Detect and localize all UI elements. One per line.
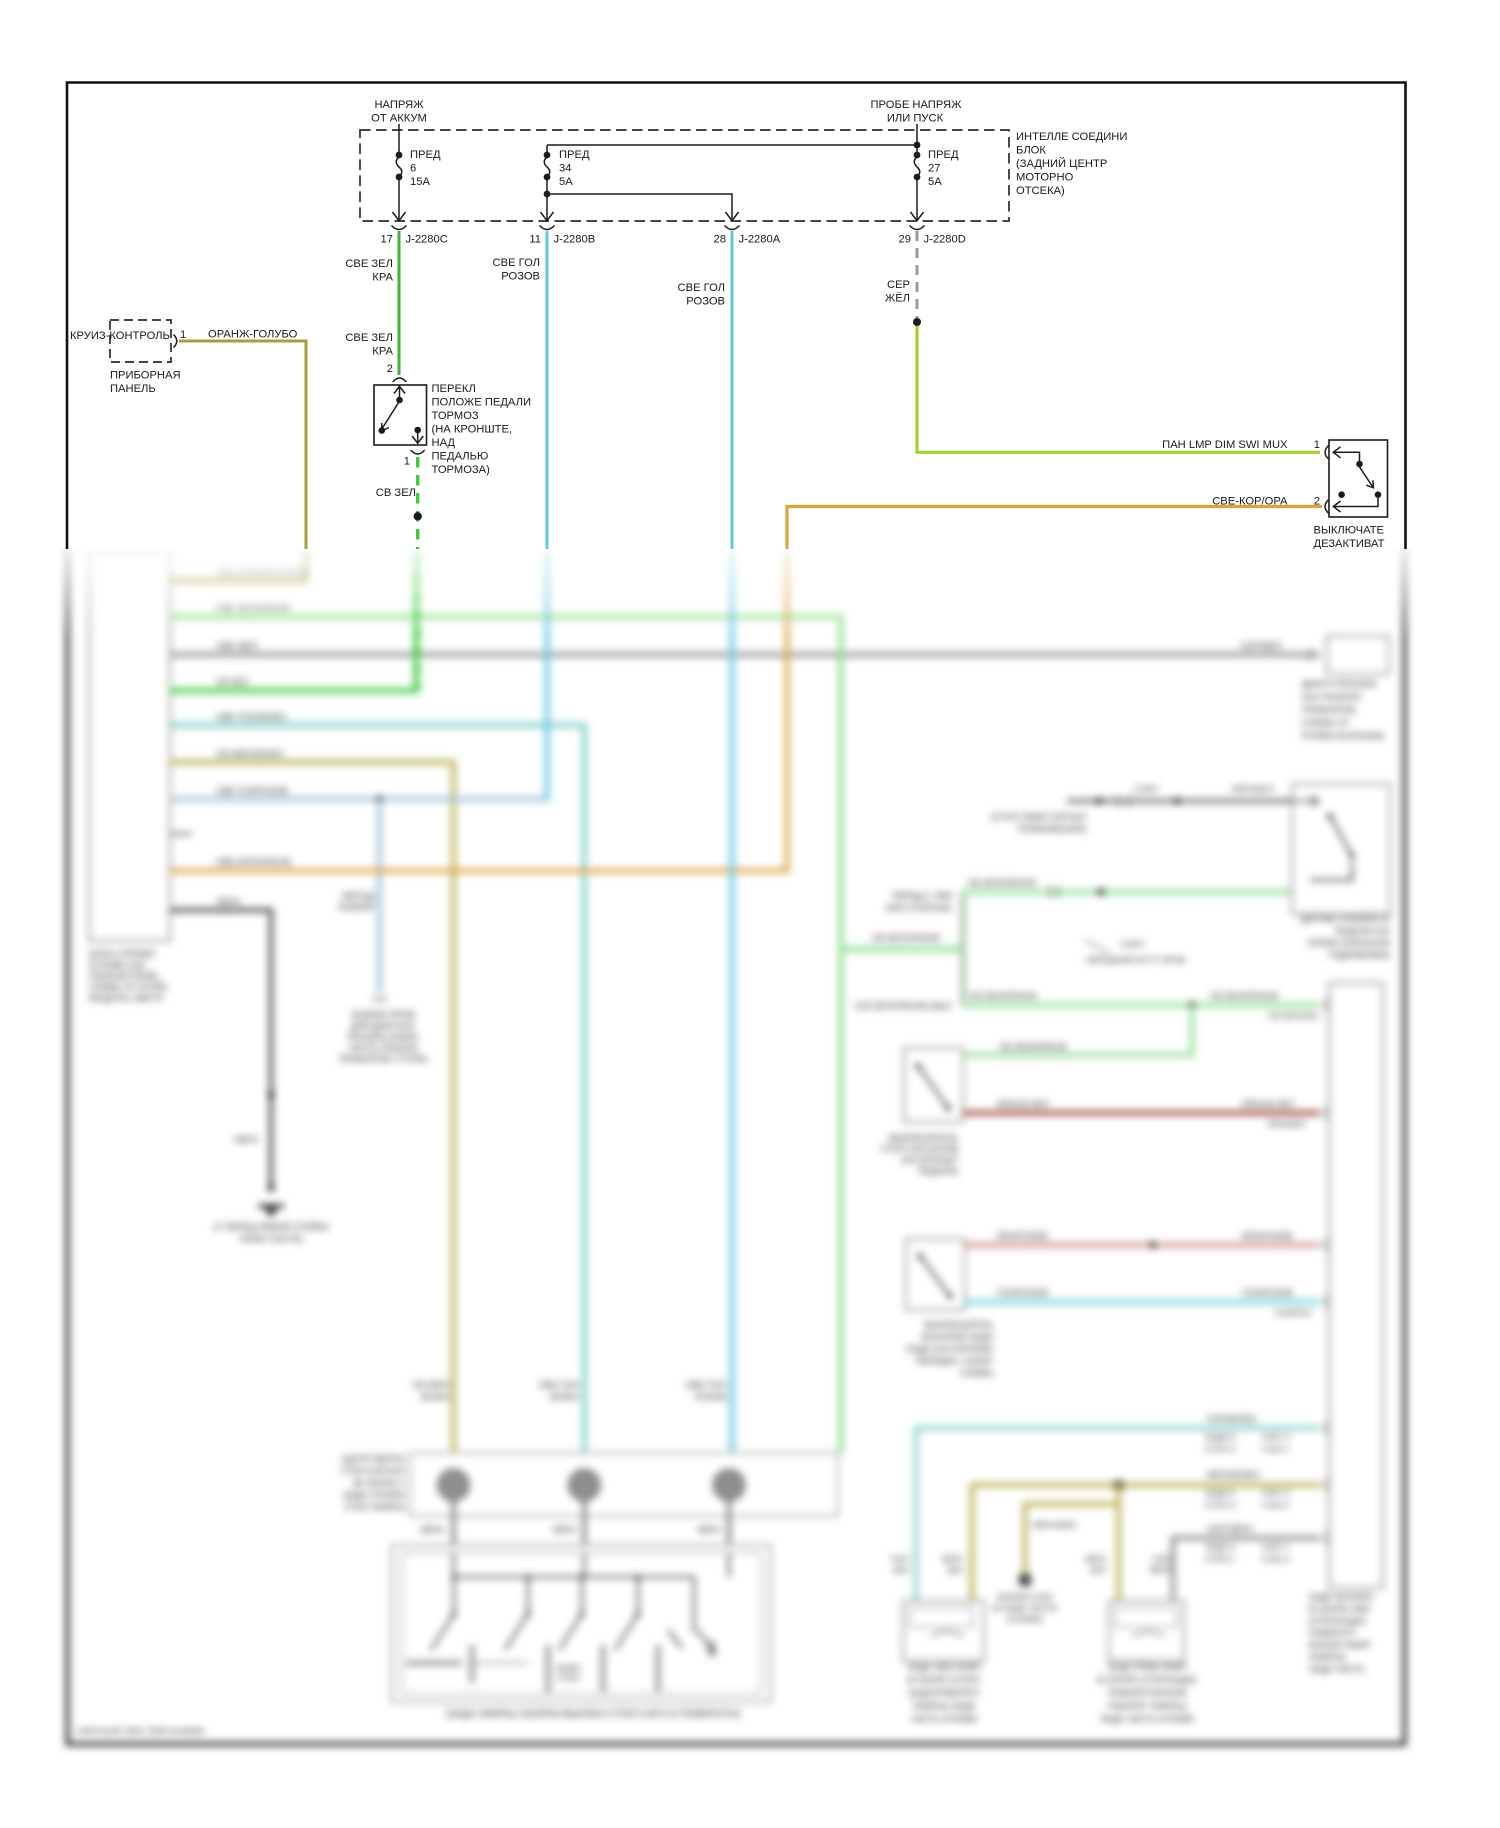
svg-text:ЛАМПЫ) ЗАДН: ЛАМПЫ) ЗАДН <box>912 1701 976 1711</box>
svg-text:С407 1: С407 1 <box>1262 1542 1290 1552</box>
svg-text:СТОП 2: СТОП 2 <box>1205 1444 1236 1454</box>
svg-text:ЗЕЛ: ЗЕЛ <box>1090 1565 1106 1575</box>
svg-text:СВ ЗЕЛ: СВ ЗЕЛ <box>216 677 248 687</box>
svg-text:РАЗЪЕМ (НИЖН: РАЗЪЕМ (НИЖН <box>348 1032 419 1042</box>
svg-text:J-2280B: J-2280B <box>554 234 596 246</box>
svg-text:6: 6 <box>410 163 416 175</box>
svg-text:ЗАЗЕМЛ: ЗАЗЕМЛ <box>338 902 374 912</box>
svg-text:РУЛЕВ КОЛОНКИ): РУЛЕВ КОЛОНКИ) <box>1302 731 1384 742</box>
svg-text:ПЕДАЛИ (НА: ПЕДАЛИ (НА <box>1335 926 1390 936</box>
svg-text:В СБОРЕ ЛЕВ: В СБОРЕ ЛЕВ <box>1309 1604 1369 1614</box>
svg-text:ТОРМОЗА): ТОРМОЗА) <box>432 464 491 476</box>
svg-text:СВЕ ГОЛ: СВЕ ГОЛ <box>678 282 725 294</box>
svg-text:15A: 15A <box>410 176 430 188</box>
svg-text:(В ЗАДН ЧАСТИ: (В ЗАДН ЧАСТИ <box>993 1603 1058 1613</box>
svg-text:2: 2 <box>387 363 393 375</box>
svg-text:МОДУЛЬ СВЕТА: МОДУЛЬ СВЕТА <box>89 993 163 1004</box>
svg-text:ЖЁЛ/: ЖЁЛ/ <box>1085 1554 1107 1564</box>
svg-text:ПЕРЕДНИЙ ЖГУТ ПРОВ: ПЕРЕДНИЙ ЖГУТ ПРОВ <box>1086 954 1185 965</box>
svg-text:(В СБОРЕ С: (В СБОРЕ С <box>353 1478 405 1488</box>
svg-text:ДЛЯ ДИАГНОС: ДЛЯ ДИАГНОС <box>351 1021 416 1031</box>
svg-text:J-2280A: J-2280A <box>739 234 781 246</box>
svg-text:J-2280C: J-2280C <box>406 234 448 246</box>
svg-text:СВЕ-ОРАНЖ/ГОЛУБО: СВЕ-ОРАНЖ/ГОЛУБО <box>216 567 309 577</box>
svg-text:КРА/ЖЁЛ: КРА/ЖЁЛ <box>1268 1119 1305 1129</box>
svg-text:ЗЕЛ: ЗЕЛ <box>947 1565 963 1575</box>
svg-text:ЗАДН СПОЙЛ): ЗАДН СПОЙЛ) <box>343 1489 405 1500</box>
svg-text:С407 2: С407 2 <box>1262 1488 1290 1498</box>
svg-text:СВЕ ЖЁЛ: СВЕ ЖЁЛ <box>216 641 257 651</box>
svg-text:ГИДРАВЛИКИ): ГИДРАВЛИКИ) <box>1328 950 1390 960</box>
svg-text:ЖЁЛ/ЗЕЛЕН: ЖЁЛ/ЗЕЛЕН <box>1207 1470 1260 1480</box>
svg-text:РОЗОВ: РОЗОВ <box>686 296 725 308</box>
svg-text:5A: 5A <box>928 176 942 188</box>
svg-text:С2057: С2057 <box>1134 784 1159 794</box>
svg-text:СВЕ ЗЕЛ: СВЕ ЗЕЛ <box>345 258 393 270</box>
svg-text:ЛАМПЫ): ЛАМПЫ) <box>1309 1652 1346 1662</box>
svg-text:ПЕДАЛИ): ПЕДАЛИ) <box>918 1166 958 1176</box>
svg-text:БЛОК: БЛОК <box>1016 145 1046 157</box>
svg-text:ЗАДН 6: ЗАДН 6 <box>1205 1432 1235 1442</box>
svg-text:БЛОКЕ КЛАПАНОВ: БЛОКЕ КЛАПАНОВ <box>1308 938 1390 948</box>
svg-text:КУЗОВА (НА: КУЗОВА (НА <box>89 960 146 971</box>
svg-text:1: 1 <box>180 329 186 341</box>
svg-text:(ЗАДН ЛАМПЫ СБОРКА ВЫКЛЮЧ СТОП: (ЗАДН ЛАМПЫ СБОРКА ВЫКЛЮЧ СТОП-СИГН И ПО… <box>446 1709 741 1720</box>
svg-text:ЗЕЛЕН: ЗЕЛЕН <box>549 1392 579 1402</box>
svg-text:СВ ЗЕЛ/ОРАНЖ: СВ ЗЕЛ/ОРАНЖ <box>999 1042 1068 1052</box>
svg-text:СЛЕВА): СЛЕВА) <box>960 1368 993 1378</box>
svg-text:СВ ЗЕЛ/ОРАНЖ: СВ ЗЕЛ/ОРАНЖ <box>969 991 1038 1001</box>
svg-text:27: 27 <box>928 163 940 175</box>
svg-text:ПРОБЕ НАПРЯЖ: ПРОБЕ НАПРЯЖ <box>871 99 963 111</box>
svg-text:2: 2 <box>1314 496 1320 508</box>
svg-text:ВЫКЛЮЧАТЕЛЬ: ВЫКЛЮЧАТЕЛЬ <box>889 1133 958 1143</box>
svg-text:ЗЕЛ: ЗЕЛ <box>893 1565 909 1575</box>
svg-text:ГОЛ/ЗЕЛЕН: ГОЛ/ЗЕЛЕН <box>1207 1414 1257 1424</box>
svg-text:КРА/РОЗОВ: КРА/РОЗОВ <box>1242 1231 1292 1241</box>
svg-text:КРА/СВ ЗЕЛ: КРА/СВ ЗЕЛ <box>997 1099 1049 1109</box>
svg-text:ЗАДН ПРАВ ЛАМП: ЗАДН ПРАВ ЛАМП <box>1107 1662 1186 1672</box>
svg-text:ЧАСТЬ ПАНЕЛИ: ЧАСТЬ ПАНЕЛИ <box>348 1043 417 1053</box>
svg-text:СЕР/ЖЁЛ: СЕР/ЖЁЛ <box>1240 641 1281 651</box>
svg-text:С410 1: С410 1 <box>1262 1444 1290 1454</box>
svg-text:ЗАДН/ПОВОРОТ: ЗАДН/ПОВОРОТ <box>908 1688 980 1698</box>
svg-text:КРУИЗ-КОНТРОЛЬ: КРУИЗ-КОНТРОЛЬ <box>70 330 170 342</box>
svg-text:СВЕ ГОЛ: СВЕ ГОЛ <box>493 257 540 269</box>
svg-text:СЛЕВА ОТ РУЛЯ): СЛЕВА ОТ РУЛЯ) <box>89 982 167 993</box>
svg-text:ДАТЧИК УСКОРЕН И: ДАТЧИК УСКОРЕН И <box>1301 914 1390 924</box>
svg-text:(ЗАДНИЙ ЦЕНТР: (ЗАДНИЙ ЦЕНТР <box>1016 157 1107 170</box>
svg-text:(СТОП/ЗАДН/: (СТОП/ЗАДН/ <box>1309 1616 1367 1626</box>
svg-text:ЗЕЛЕН: ЗЕЛЕН <box>420 1392 450 1402</box>
svg-text:28: 28 <box>714 234 726 246</box>
svg-text:КРА: КРА <box>372 272 393 284</box>
svg-text:СВ ЖЁЛ/: СВ ЖЁЛ/ <box>412 1380 450 1390</box>
svg-text:СТОП-СИГНАЛОВ: СТОП-СИГНАЛОВ <box>881 1144 958 1154</box>
svg-text:ЛАМП: ЛАМП <box>556 1663 580 1673</box>
svg-text:СЛЕВА ОТ: СЛЕВА ОТ <box>1302 718 1350 729</box>
svg-text:ЧАСТЬ КУЗОВА: ЧАСТЬ КУЗОВА <box>911 1714 978 1724</box>
svg-text:ЗАДН 4: ЗАДН 4 <box>1205 1542 1235 1552</box>
svg-text:СТОП: СТОП <box>556 1673 579 1683</box>
svg-text:ЗАДН ЛЕВ ЛАМП: ЗАДН ЛЕВ ЛАМП <box>907 1662 980 1672</box>
svg-text:ПАН LMP DIM SWI MUX: ПАН LMP DIM SWI MUX <box>1162 439 1288 451</box>
svg-text:СВЕ ЗЕЛ: СВЕ ЗЕЛ <box>345 332 393 344</box>
svg-text:ЧЁРН: ЧЁРН <box>216 897 241 907</box>
svg-text:С407 4: С407 4 <box>1262 1432 1290 1442</box>
svg-text:ПРИБОРОВ: ПРИБОРОВ <box>1302 705 1355 716</box>
svg-text:БЛОК УПРАВЛ: БЛОК УПРАВЛ <box>89 949 154 960</box>
svg-text:29: 29 <box>899 234 911 246</box>
svg-text:НИЖН ЧАСТИ): НИЖН ЧАСТИ) <box>239 1234 302 1244</box>
svg-text:(НА ПАНЕЛИ: (НА ПАНЕЛИ <box>1302 692 1361 703</box>
svg-text:ГОЛ/РОЗОВ: ГОЛ/РОЗОВ <box>1242 1288 1293 1298</box>
svg-text:ПЕРЕД С ЛЕВ: ПЕРЕД С ЛЕВ <box>892 891 952 901</box>
svg-text:НИЗ СТОРОНЫ: НИЗ СТОРОНЫ <box>886 903 953 913</box>
svg-text:МОТОРНО: МОТОРНО <box>1016 172 1074 184</box>
svg-text:ФОНАРЕЙ ЗАДН: ФОНАРЕЙ ЗАДН <box>921 1331 993 1342</box>
svg-text:С410 3: С410 3 <box>1262 1554 1290 1564</box>
svg-text:СТОП 1: СТОП 1 <box>1205 1554 1236 1564</box>
svg-text:ПАНЕЛЬ: ПАНЕЛЬ <box>110 383 156 395</box>
svg-text:CHRYSLER 300C 2008 SCHEMA: CHRYSLER 300C 2008 SCHEMA <box>76 1726 205 1736</box>
svg-text:КРА/СВ ЗЕЛ: КРА/СВ ЗЕЛ <box>1242 1099 1294 1109</box>
svg-text:ГОЛ/РОЗ: ГОЛ/РОЗ <box>1275 1308 1311 1318</box>
svg-text:ПОВОРОТ/БОКОВ: ПОВОРОТ/БОКОВ <box>1108 1688 1186 1698</box>
svg-text:ПЕРЕДАЧ, СНИЗУ: ПЕРЕДАЧ, СНИЗУ <box>916 1356 994 1366</box>
svg-text:ПАНЕЛИ ПРИБ,: ПАНЕЛИ ПРИБ, <box>89 971 160 982</box>
svg-text:В СБОРЕ (СТОП/ЗАДН/: В СБОРЕ (СТОП/ЗАДН/ <box>1097 1675 1197 1685</box>
svg-text:БОКОВ ГАБАР: БОКОВ ГАБАР <box>1309 1640 1370 1650</box>
svg-text:РОЗОВ: РОЗОВ <box>501 271 540 283</box>
svg-text:ДЕЗАКТИВАТ: ДЕЗАКТИВАТ <box>1314 538 1385 549</box>
svg-text:ПРЕД: ПРЕД <box>928 149 959 161</box>
svg-text:ВЫКЛЮЧАТЕ: ВЫКЛЮЧАТЕ <box>1314 525 1385 537</box>
svg-text:ПРИБОРОВ У РУЛЯ): ПРИБОРОВ У РУЛЯ) <box>339 1054 427 1064</box>
svg-text:ТОРМОЖЕНИЯ): ТОРМОЖЕНИЯ) <box>1017 824 1086 834</box>
svg-text:СЕР/: СЕР/ <box>1152 1554 1172 1564</box>
svg-text:ЖЁЛ: ЖЁЛ <box>885 293 910 305</box>
svg-text:СВ ЗЕЛ/ОРА: СВ ЗЕЛ/ОРА <box>1268 1011 1319 1021</box>
svg-text:ЗАДН ЧАСТЬ: ЗАДН ЧАСТЬ <box>1309 1664 1365 1674</box>
svg-text:ПЕРЕКЛ: ПЕРЕКЛ <box>432 383 476 395</box>
svg-text:СВЕ ГОЛ/: СВЕ ГОЛ/ <box>538 1380 579 1390</box>
svg-text:С410 2: С410 2 <box>1262 1500 1290 1510</box>
svg-text:ПОЛОЖЕ ПЕДАЛИ: ПОЛОЖЕ ПЕДАЛИ <box>432 397 532 409</box>
svg-text:ЧЁРН/ЖЁЛ: ЧЁРН/ЖЁЛ <box>1032 1520 1077 1530</box>
svg-text:МЕТОД: МЕТОД <box>343 891 375 901</box>
svg-text:НАД: НАД <box>432 437 456 449</box>
svg-text:(У ПЕРЕД ЛЕВОЙ СТОЙКИ: (У ПЕРЕД ЛЕВОЙ СТОЙКИ <box>214 1221 328 1232</box>
svg-text:СВЕ-КОР/ОРА: СВЕ-КОР/ОРА <box>1212 496 1288 508</box>
svg-text:С2057: С2057 <box>1120 939 1145 949</box>
svg-text:КРА/РОЗОВ: КРА/РОЗОВ <box>997 1231 1047 1241</box>
svg-text:РОЗОВ: РОЗОВ <box>695 1392 726 1402</box>
svg-text:ПРЕД: ПРЕД <box>559 149 590 161</box>
svg-text:СВ ЗЕЛ/ОРАНЖ: СВ ЗЕЛ/ОРАНЖ <box>968 878 1037 888</box>
svg-text:ОРАНЖ-ГОЛУБО: ОРАНЖ-ГОЛУБО <box>208 329 298 341</box>
svg-text:НАПРЯЖ: НАПРЯЖ <box>374 99 424 111</box>
svg-text:ЧЁРН: ЧЁРН <box>1149 1565 1172 1575</box>
svg-text:СВ ЗЕЛ: СВ ЗЕЛ <box>376 487 416 499</box>
svg-text:1: 1 <box>1314 439 1320 451</box>
svg-text:СВ ЗЕЛ/ОРАНЖ: СВ ЗЕЛ/ОРАНЖ <box>872 933 941 943</box>
svg-text:ЗАДН 5: ЗАДН 5 <box>1205 1488 1235 1498</box>
svg-text:ЖЁЛ/: ЖЁЛ/ <box>942 1554 964 1564</box>
svg-text:ЧЁРН: ЧЁРН <box>233 1135 258 1145</box>
svg-text:КУЗОВА): КУЗОВА) <box>1007 1614 1043 1624</box>
svg-text:ЧЁРН: ЧЁРН <box>419 1525 444 1535</box>
svg-text:(НА КРОНШТЕ,: (НА КРОНШТЕ, <box>432 424 513 436</box>
svg-text:ЦЕНТР ВЕРХН: ЦЕНТР ВЕРХН <box>342 1454 405 1464</box>
svg-text:ПРИБОРНАЯ: ПРИБОРНАЯ <box>110 370 181 382</box>
svg-text:(СТОП ЛАМП СИГНАЛ: (СТОП ЛАМП СИГНАЛ <box>991 812 1086 822</box>
svg-text:ТОРМОЗ: ТОРМОЗ <box>432 410 479 422</box>
svg-text:ДИАГН РАЗЪЕМ: ДИАГН РАЗЪЕМ <box>1302 679 1376 690</box>
svg-text:ГОЛ/: ГОЛ/ <box>890 1554 909 1564</box>
svg-text:ИЛИ ПУСК: ИЛИ ПУСК <box>887 113 944 125</box>
svg-text:ЗАЗЕМЛ ПРОВ: ЗАЗЕМЛ ПРОВ <box>351 1010 415 1020</box>
svg-text:ЧЁРН: ЧЁРН <box>696 1525 721 1535</box>
svg-text:В СБОРЕ (СТОП/: В СБОРЕ (СТОП/ <box>908 1675 981 1685</box>
svg-text:СВЕ-КОР/ОРАНЖ: СВЕ-КОР/ОРАНЖ <box>216 857 292 867</box>
svg-text:ЗАДН ФОНАРЬ: ЗАДН ФОНАРЬ <box>1309 1592 1374 1602</box>
svg-text:ПРЕД: ПРЕД <box>410 149 441 161</box>
svg-text:ПОВОРОТ/: ПОВОРОТ/ <box>1309 1628 1356 1638</box>
svg-text:(НА КРОНШТ: (НА КРОНШТ <box>902 1155 959 1165</box>
svg-text:ОТСЕКА): ОТСЕКА) <box>1016 185 1065 197</box>
svg-text:ЗАДН ЧАСТЬ КУЗОВА: ЗАДН ЧАСТЬ КУЗОВА <box>1100 1714 1194 1724</box>
svg-text:СЕР: СЕР <box>887 279 910 291</box>
svg-text:ВЫКЛЮЧАТЕЛЬ: ВЫКЛЮЧАТЕЛЬ <box>924 1320 993 1330</box>
svg-text:ХОДА (НА КОРОБКЕ: ХОДА (НА КОРОБКЕ <box>906 1344 993 1354</box>
svg-text:5A: 5A <box>559 176 573 188</box>
svg-text:34: 34 <box>559 163 571 175</box>
svg-text:ПЕДАЛЬЮ: ПЕДАЛЬЮ <box>432 451 489 463</box>
svg-text:ЗАЗЕМЛ G401: ЗАЗЕМЛ G401 <box>996 1592 1054 1602</box>
svg-text:СВЕ ГОЛ/ЗЕЛЕН: СВЕ ГОЛ/ЗЕЛЕН <box>216 712 287 722</box>
svg-text:СВЕ ГОЛ/: СВЕ ГОЛ/ <box>685 1380 726 1390</box>
svg-text:СВ ЖЁЛ/ЗЕЛЕН: СВ ЖЁЛ/ЗЕЛЕН <box>216 749 284 759</box>
svg-text:ОТ АККУМ: ОТ АККУМ <box>371 113 427 125</box>
svg-text:17: 17 <box>381 234 393 246</box>
svg-text:ГАБАРИТ ЛАМПЫ): ГАБАРИТ ЛАМПЫ) <box>1107 1701 1186 1711</box>
svg-text:СЕР/ЧЁРН: СЕР/ЧЁРН <box>1207 1524 1253 1534</box>
svg-text:11: 11 <box>529 234 541 246</box>
svg-text:КРА: КРА <box>372 346 393 358</box>
svg-text:СТОП-СИГНАЛ: СТОП-СИГНАЛ <box>341 1466 405 1476</box>
svg-text:СВ ЗЕЛ/ОРАНЖ: СВ ЗЕЛ/ОРАНЖ <box>1210 991 1279 1001</box>
svg-text:СТОП 3: СТОП 3 <box>1205 1500 1236 1510</box>
svg-text:ИНТЕЛЛЕ СОЕДИНИ: ИНТЕЛЛЕ СОЕДИНИ <box>1016 131 1127 143</box>
svg-text:СТОП ЛАМПЫ: СТОП ЛАМПЫ <box>344 1502 405 1512</box>
svg-text:1: 1 <box>404 456 410 468</box>
svg-text:ГОЛ/РОЗОВ: ГОЛ/РОЗОВ <box>997 1288 1048 1298</box>
svg-text:ЧЁРН/БЕЛ: ЧЁРН/БЕЛ <box>1231 784 1273 794</box>
svg-text:СВЕ ГОЛ/РОЗОВ: СВЕ ГОЛ/РОЗОВ <box>216 786 288 796</box>
svg-text:ЧЁРН: ЧЁРН <box>551 1525 576 1535</box>
svg-text:СВЕ ЗЕЛ/ОРАНЖ: СВЕ ЗЕЛ/ОРАНЖ <box>216 603 291 613</box>
svg-text:(СВ ЗЕЛ/ОРАНЖ) ВЫС: (СВ ЗЕЛ/ОРАНЖ) ВЫС <box>855 1001 953 1011</box>
svg-text:J-2280D: J-2280D <box>924 234 966 246</box>
